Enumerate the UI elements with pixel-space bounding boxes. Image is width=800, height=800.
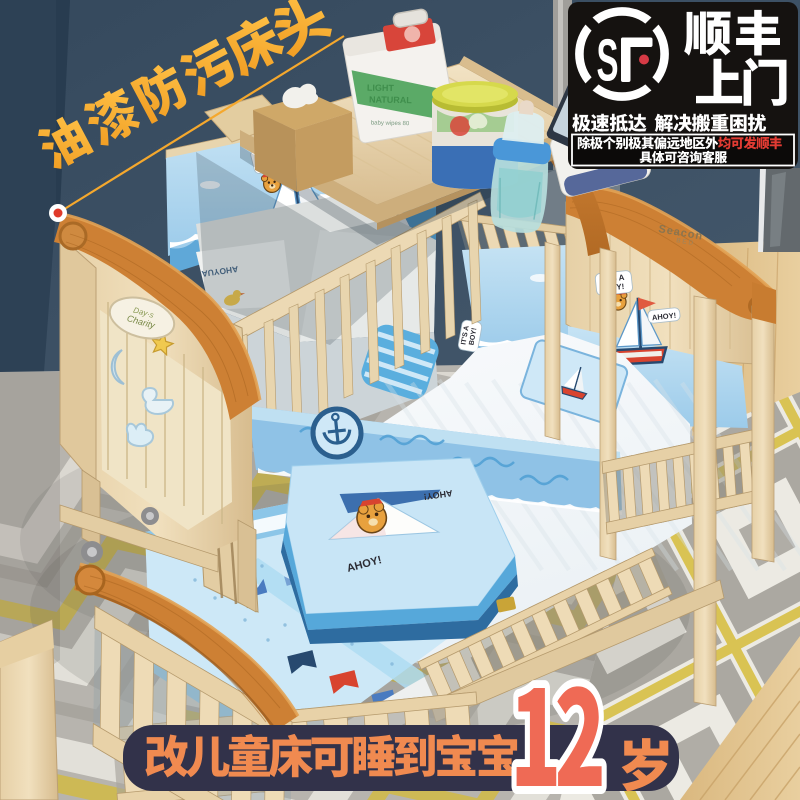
svg-text:NATURAL: NATURAL xyxy=(369,94,412,105)
svg-text:S: S xyxy=(596,29,618,94)
svg-text:baby wipes 80: baby wipes 80 xyxy=(371,120,410,127)
svg-text:LIGHT: LIGHT xyxy=(367,83,395,93)
